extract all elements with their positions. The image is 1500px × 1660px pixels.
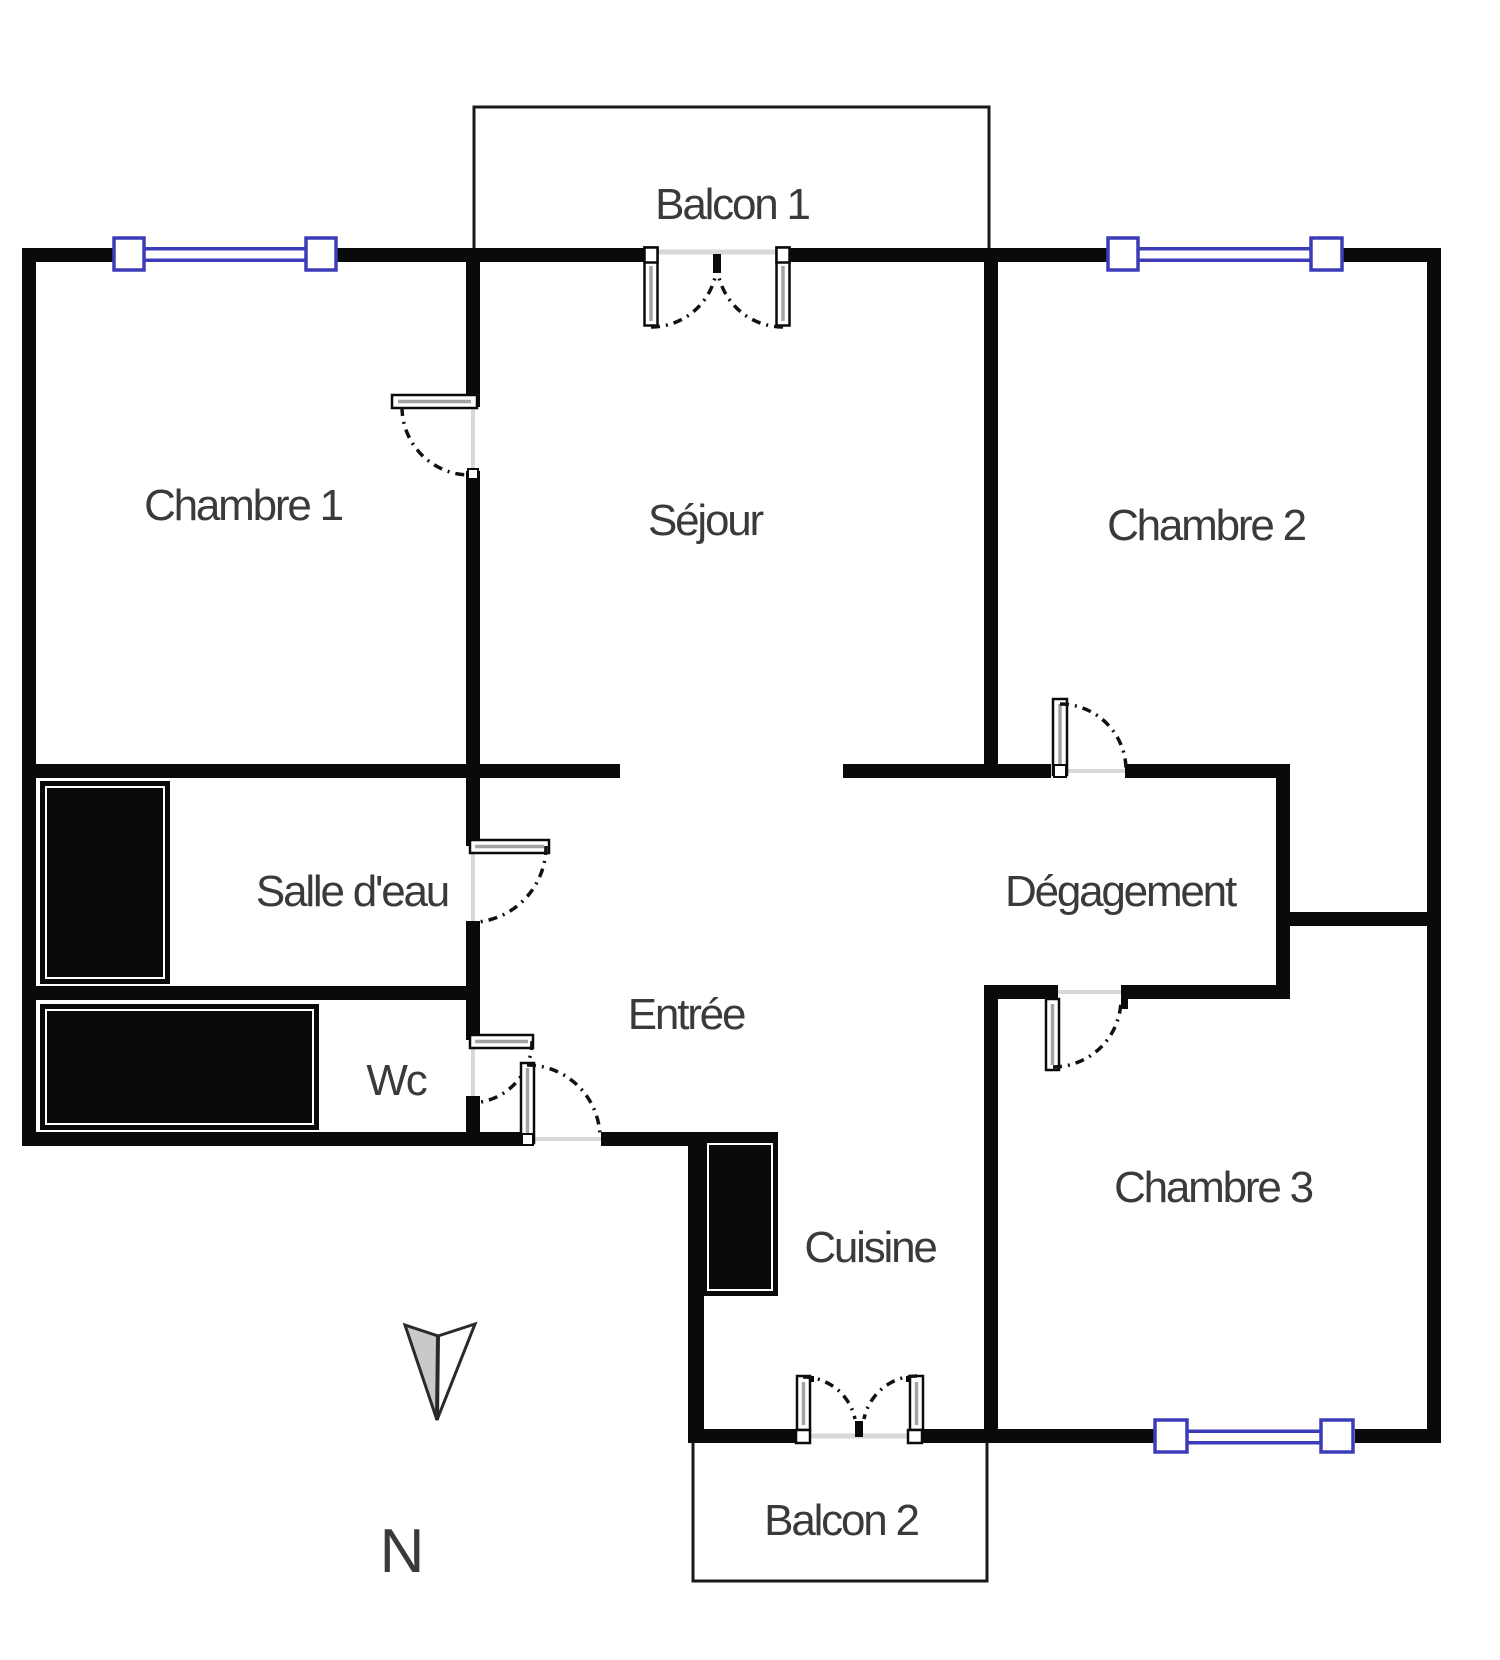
svg-text:Cuisine: Cuisine <box>804 1223 936 1272</box>
svg-text:Dégagement: Dégagement <box>1005 867 1237 916</box>
svg-text:Entrée: Entrée <box>628 990 745 1039</box>
svg-text:Chambre 2: Chambre 2 <box>1107 501 1306 550</box>
svg-text:N: N <box>380 1517 425 1586</box>
svg-text:Séjour: Séjour <box>648 496 764 545</box>
svg-text:Wc: Wc <box>366 1056 426 1105</box>
svg-text:Chambre 3: Chambre 3 <box>1114 1163 1313 1212</box>
svg-text:Salle d'eau: Salle d'eau <box>256 867 448 916</box>
svg-text:Chambre 1: Chambre 1 <box>144 481 343 530</box>
svg-text:Balcon 1: Balcon 1 <box>655 180 809 229</box>
svg-text:Balcon 2: Balcon 2 <box>764 1496 918 1545</box>
